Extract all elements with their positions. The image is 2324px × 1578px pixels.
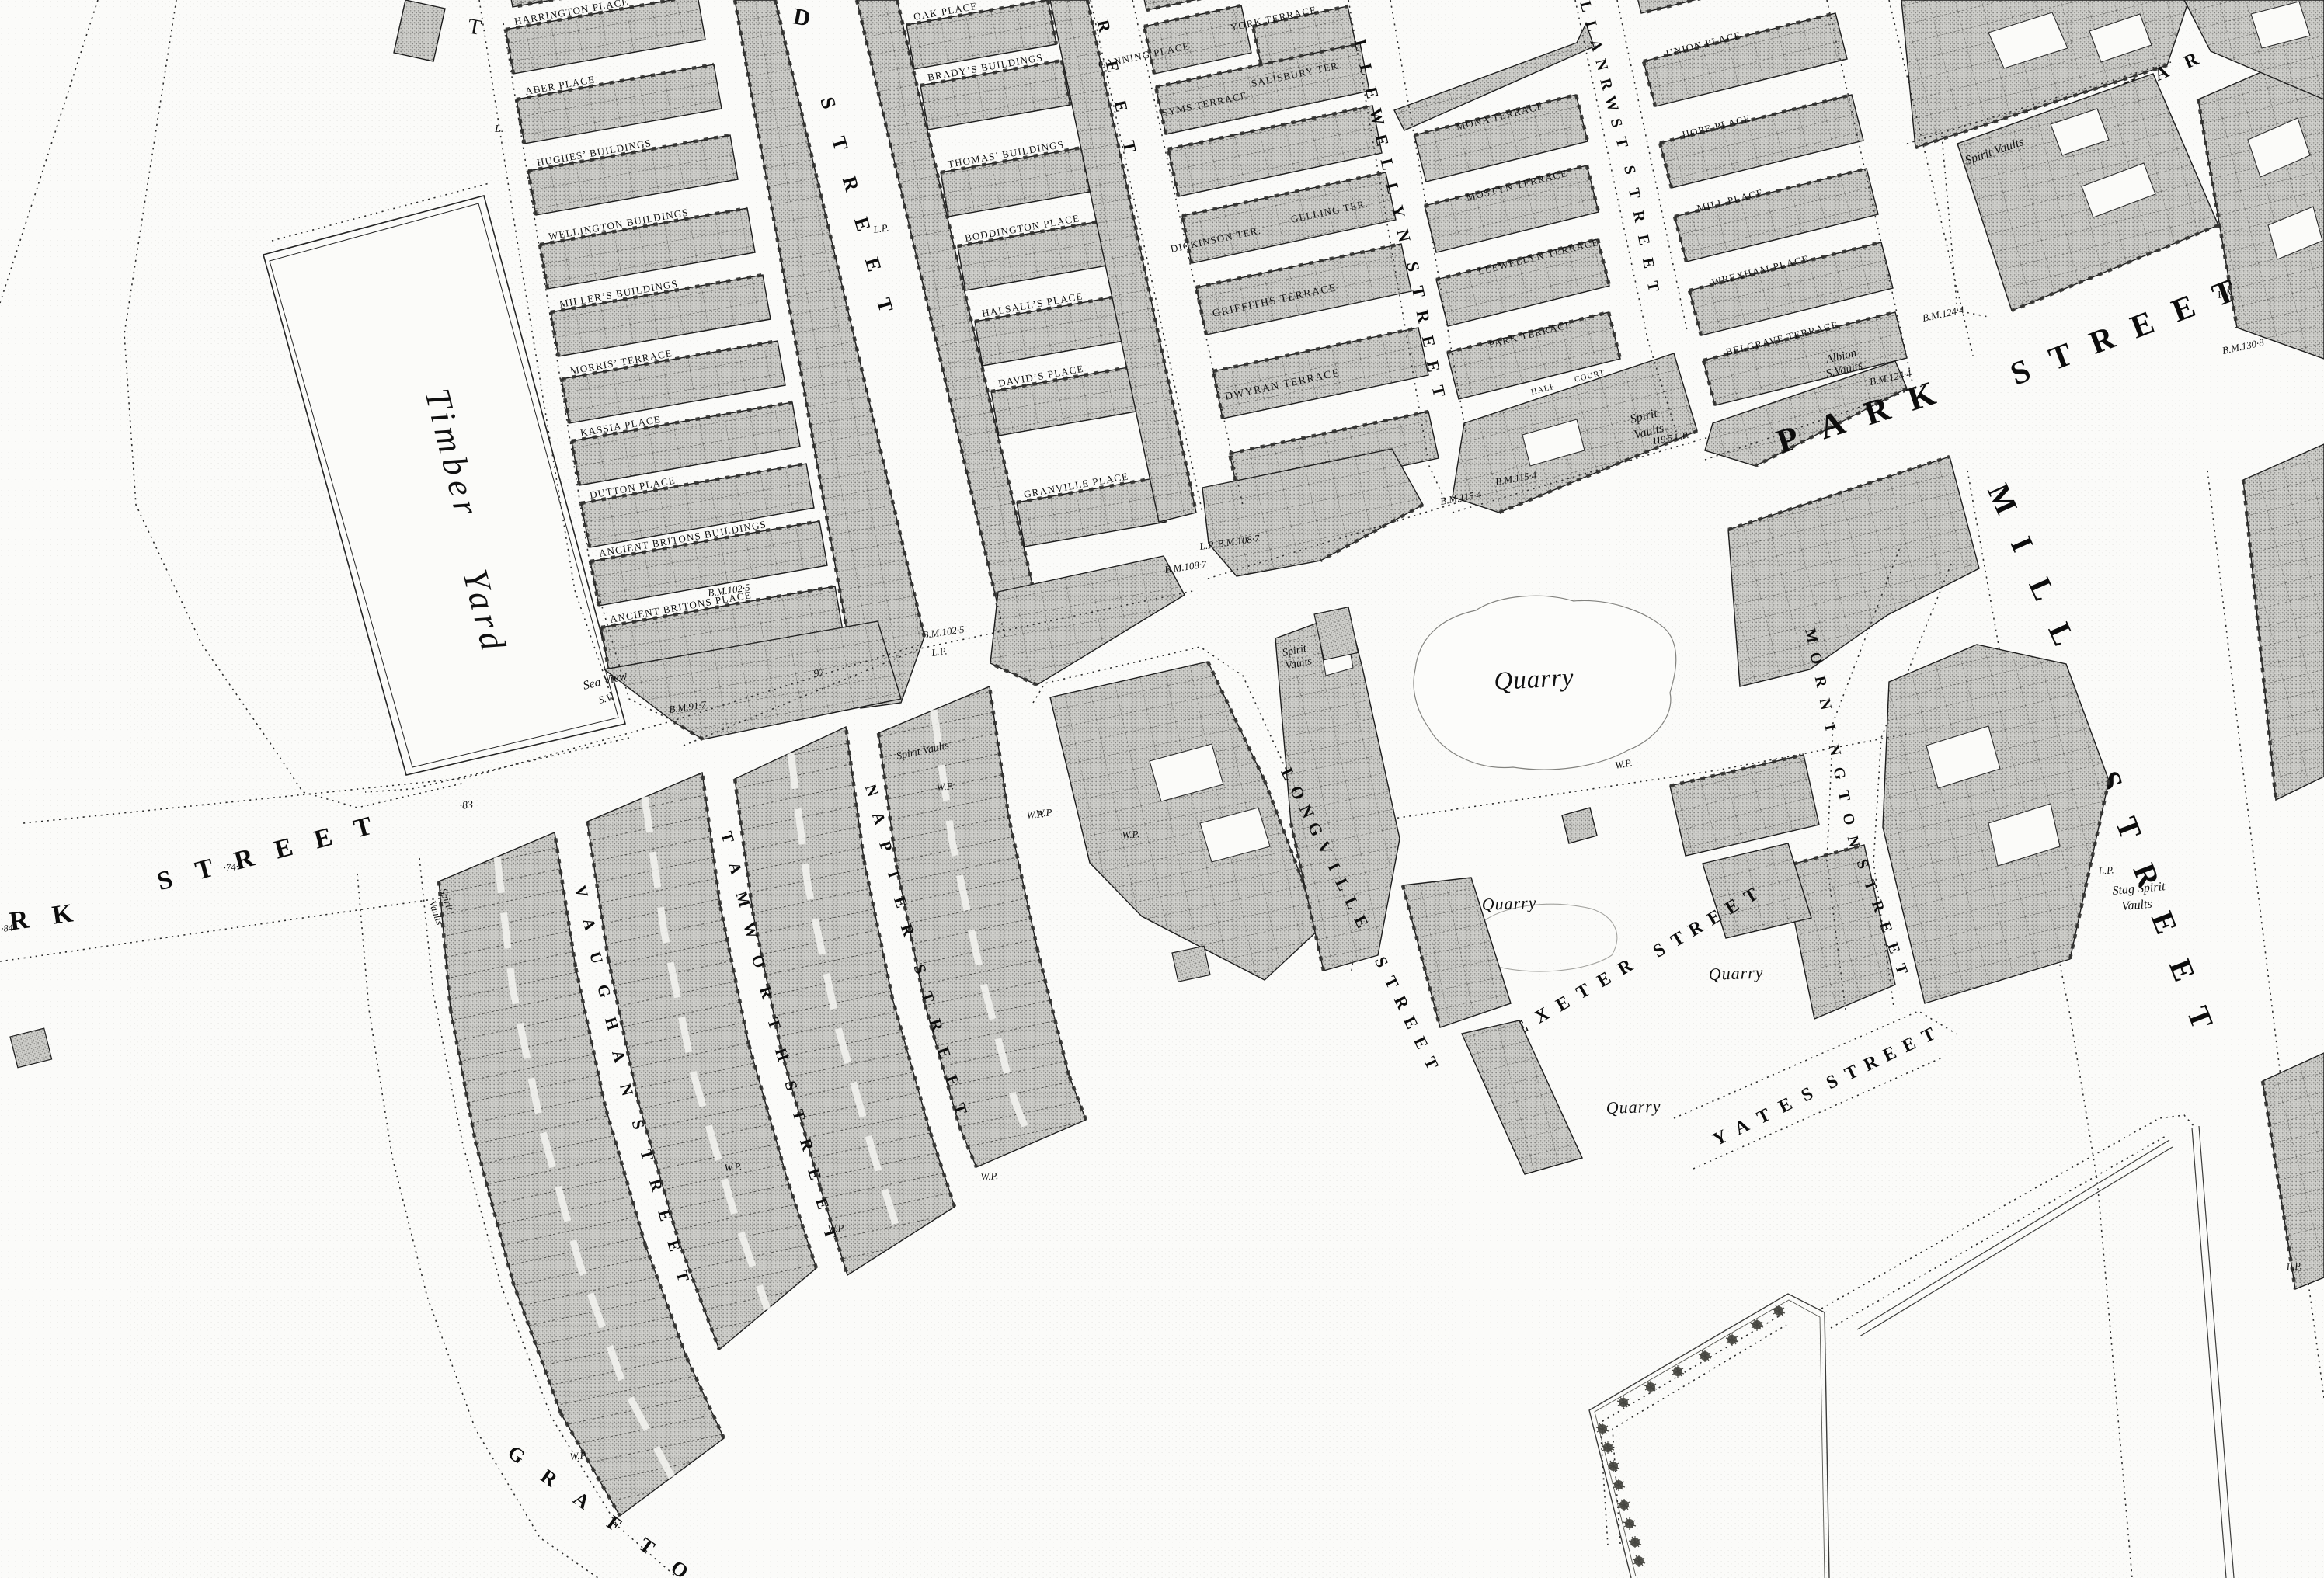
svg-text:W.P.: W.P. bbox=[936, 780, 955, 793]
svg-text:W.P.: W.P. bbox=[1035, 806, 1054, 819]
svg-text:W.P.: W.P. bbox=[827, 1222, 846, 1235]
svg-text:L.P.: L.P. bbox=[871, 221, 889, 235]
svg-text:Quarry: Quarry bbox=[1708, 963, 1764, 984]
svg-text:W.P.: W.P. bbox=[724, 1160, 743, 1173]
svg-text:Vaults: Vaults bbox=[2121, 898, 2152, 913]
svg-text:L.P.: L.P. bbox=[2097, 864, 2114, 877]
svg-text:·83: ·83 bbox=[459, 799, 474, 812]
svg-text:·74·: ·74· bbox=[223, 860, 239, 874]
svg-text:Quarry: Quarry bbox=[1494, 664, 1575, 696]
svg-text:Quarry: Quarry bbox=[1481, 893, 1537, 914]
svg-text:L.P.: L.P. bbox=[2285, 1260, 2302, 1273]
svg-text:L.P.: L.P. bbox=[930, 645, 948, 659]
svg-text:W.P.: W.P. bbox=[1122, 828, 1140, 841]
svg-text:W.P.: W.P. bbox=[569, 1449, 588, 1462]
svg-text:·84·: ·84· bbox=[1, 922, 16, 934]
svg-text:W.P.: W.P. bbox=[980, 1170, 999, 1183]
svg-text:Quarry: Quarry bbox=[1606, 1097, 1661, 1117]
